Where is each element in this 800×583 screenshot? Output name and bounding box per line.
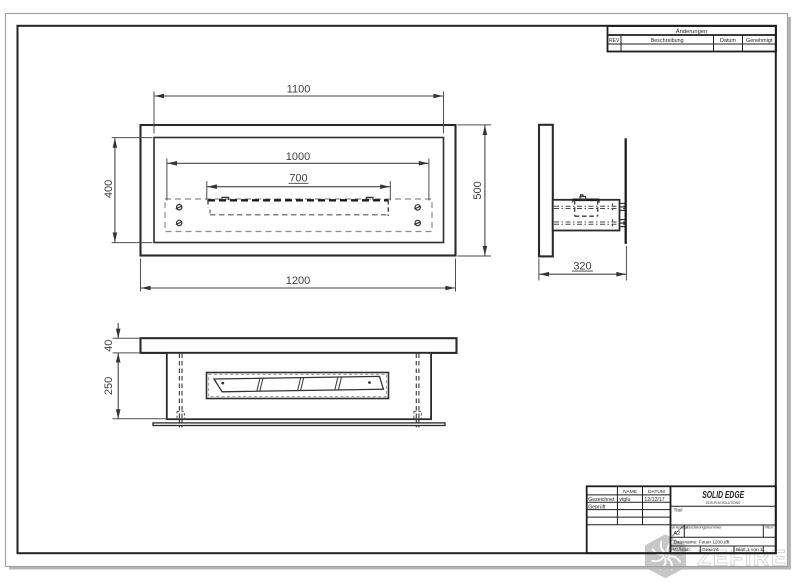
svg-text:700: 700 [289, 173, 307, 185]
svg-text:DATUM: DATUM [648, 489, 665, 495]
svg-text:Titel: Titel [674, 508, 683, 514]
svg-text:40: 40 [103, 340, 115, 352]
svg-text:Genehmigt: Genehmigt [746, 38, 773, 44]
svg-text:Zeichnungsnummer: Zeichnungsnummer [686, 525, 722, 530]
svg-text:Gewicht:: Gewicht: [702, 547, 719, 552]
svg-text:Blatt 1 von 1: Blatt 1 von 1 [736, 547, 763, 553]
svg-text:Datum: Datum [720, 38, 736, 44]
svg-text:Beschreibung: Beschreibung [651, 38, 684, 44]
svg-text:REV: REV [609, 38, 620, 44]
svg-text:REV: REV [765, 525, 774, 530]
svg-text:vtglu: vtglu [619, 497, 630, 503]
svg-text:Geprüft: Geprüft [588, 504, 606, 510]
svg-text:320: 320 [573, 260, 591, 272]
svg-text:1100: 1100 [287, 84, 311, 96]
svg-text:1000: 1000 [286, 151, 310, 163]
svg-text:Dateiname: Feuer 1200.dft: Dateiname: Feuer 1200.dft [674, 540, 730, 545]
svg-text:12/12/17: 12/12/17 [644, 497, 664, 503]
svg-text:400: 400 [103, 180, 115, 198]
svg-text:1200: 1200 [286, 275, 310, 287]
svg-text:Maßstab:: Maßstab: [673, 547, 691, 552]
svg-text:EDS-PLM SOLUTIONS: EDS-PLM SOLUTIONS [706, 500, 740, 505]
svg-text:NAME: NAME [623, 489, 637, 495]
svg-text:A2: A2 [674, 531, 681, 537]
svg-text:250: 250 [103, 377, 115, 395]
svg-text:Änderungen: Änderungen [676, 28, 708, 35]
svg-text:Gezeichnet: Gezeichnet [588, 497, 615, 503]
svg-text:500: 500 [472, 181, 484, 199]
